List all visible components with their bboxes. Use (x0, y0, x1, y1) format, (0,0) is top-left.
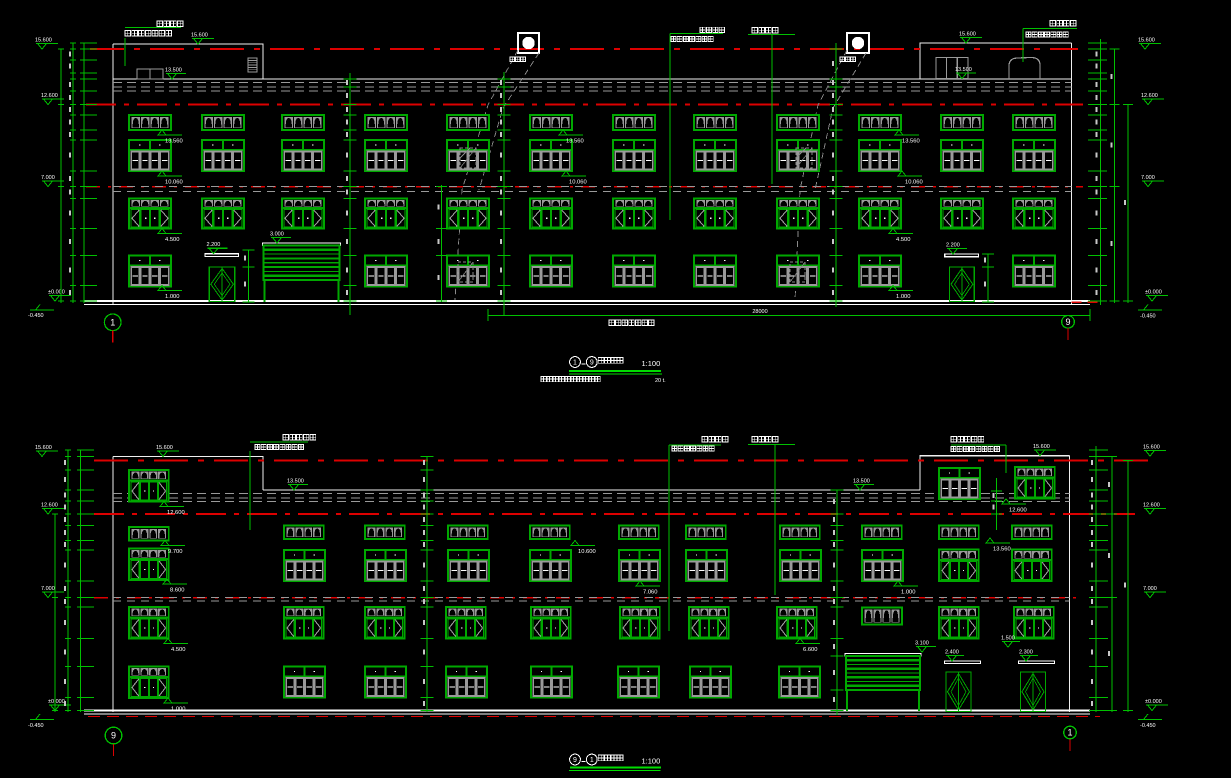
svg-text:1.000: 1.000 (901, 590, 916, 596)
svg-text:±0.000: ±0.000 (48, 699, 65, 705)
svg-text:-0.450: -0.450 (28, 723, 44, 729)
svg-text:1.000: 1.000 (171, 707, 186, 713)
svg-text:10.060: 10.060 (569, 180, 587, 186)
svg-text:9: 9 (590, 360, 594, 367)
svg-text:9.700: 9.700 (168, 549, 183, 555)
svg-text:1.000: 1.000 (896, 294, 911, 300)
svg-text:4.500: 4.500 (171, 647, 186, 653)
svg-text:13.560: 13.560 (566, 139, 584, 145)
svg-text:12.600: 12.600 (41, 503, 58, 509)
svg-text:15.600: 15.600 (35, 445, 52, 451)
svg-text:1.000: 1.000 (165, 294, 180, 300)
svg-text:7.000: 7.000 (1141, 175, 1155, 181)
svg-text:7.060: 7.060 (643, 590, 658, 596)
svg-text:3.100: 3.100 (915, 641, 929, 647)
svg-text:2.300: 2.300 (1019, 650, 1033, 656)
svg-text:12.600: 12.600 (1143, 503, 1160, 509)
svg-text:-0.450: -0.450 (28, 313, 44, 319)
svg-text:1.500: 1.500 (1001, 636, 1015, 642)
svg-text:1: 1 (573, 360, 577, 367)
svg-text:15.600: 15.600 (959, 32, 976, 38)
svg-text:±0.000: ±0.000 (1145, 290, 1162, 296)
svg-text:9: 9 (111, 731, 116, 741)
svg-text:8.600: 8.600 (170, 588, 185, 594)
svg-text:28000: 28000 (752, 309, 767, 315)
svg-text:13.500: 13.500 (955, 67, 972, 73)
svg-text:±0.000: ±0.000 (1145, 699, 1162, 705)
svg-text:10.060: 10.060 (165, 180, 183, 186)
svg-text:10.060: 10.060 (905, 180, 923, 186)
svg-text:15.600: 15.600 (156, 445, 173, 451)
svg-text:10.600: 10.600 (578, 549, 596, 555)
svg-text:13.560: 13.560 (902, 139, 920, 145)
svg-text:1:100: 1:100 (642, 757, 661, 766)
svg-text:12.600: 12.600 (1009, 507, 1027, 513)
svg-text:15.600: 15.600 (1138, 38, 1155, 44)
svg-text:20 t.: 20 t. (655, 378, 666, 384)
svg-text:1: 1 (110, 318, 115, 328)
svg-text:15.600: 15.600 (1033, 444, 1050, 450)
svg-text:2.200: 2.200 (946, 243, 960, 249)
svg-text:2.400: 2.400 (945, 650, 959, 656)
svg-text:-0.450: -0.450 (1140, 314, 1156, 320)
svg-text:13.500: 13.500 (165, 68, 182, 74)
svg-text:4.500: 4.500 (896, 237, 911, 243)
svg-text:9: 9 (1065, 317, 1070, 327)
svg-text:1:100: 1:100 (642, 359, 661, 368)
svg-text:12.600: 12.600 (41, 93, 58, 99)
svg-text:3.000: 3.000 (270, 232, 284, 238)
svg-text:-0.450: -0.450 (1140, 723, 1156, 729)
svg-text:15.600: 15.600 (35, 38, 52, 44)
svg-text:13.560: 13.560 (993, 547, 1011, 553)
svg-text:12.600: 12.600 (167, 510, 185, 516)
svg-text:1: 1 (590, 757, 594, 764)
svg-text:15.600: 15.600 (191, 33, 208, 39)
svg-text:1: 1 (1067, 728, 1072, 738)
svg-text:7.000: 7.000 (41, 586, 55, 592)
svg-text:9: 9 (573, 757, 577, 764)
svg-text:±0.000: ±0.000 (48, 290, 65, 296)
svg-text:13.500: 13.500 (287, 479, 304, 485)
svg-text:2.200: 2.200 (207, 242, 221, 248)
svg-text:12.600: 12.600 (1141, 93, 1158, 99)
svg-text:7.000: 7.000 (1143, 586, 1157, 592)
svg-text:6.600: 6.600 (803, 647, 818, 653)
svg-text:13.560: 13.560 (165, 139, 183, 145)
svg-text:13.500: 13.500 (853, 479, 870, 485)
svg-text:7.000: 7.000 (41, 175, 55, 181)
svg-text:4.500: 4.500 (165, 237, 180, 243)
svg-text:15.600: 15.600 (1143, 445, 1160, 451)
